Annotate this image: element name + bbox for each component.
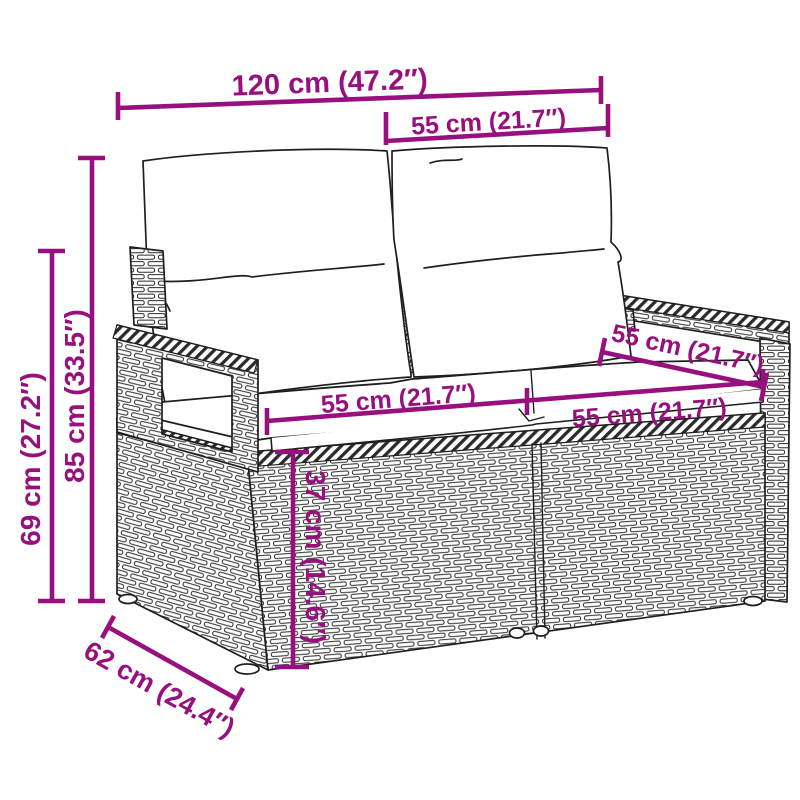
left-back-post [130,247,167,329]
back-cushion-right [392,146,631,377]
foot [119,595,137,604]
dimension-label: 37 cm (14.6″) [300,470,331,644]
foot [235,664,259,674]
dimension-label: 85 cm (33.5″) [59,309,90,483]
dimension-label: 69 cm (27.2″) [15,372,46,546]
foot [534,626,549,636]
dimension-diagram: 120 cm (47.2″) 55 cm (21.7″) 85 cm (33.5… [0,0,800,800]
diagram-canvas: 120 cm (47.2″) 55 cm (21.7″) 85 cm (33.5… [0,0,800,800]
foot [744,597,762,606]
back-cushion-left [143,149,411,408]
foot [510,628,525,638]
